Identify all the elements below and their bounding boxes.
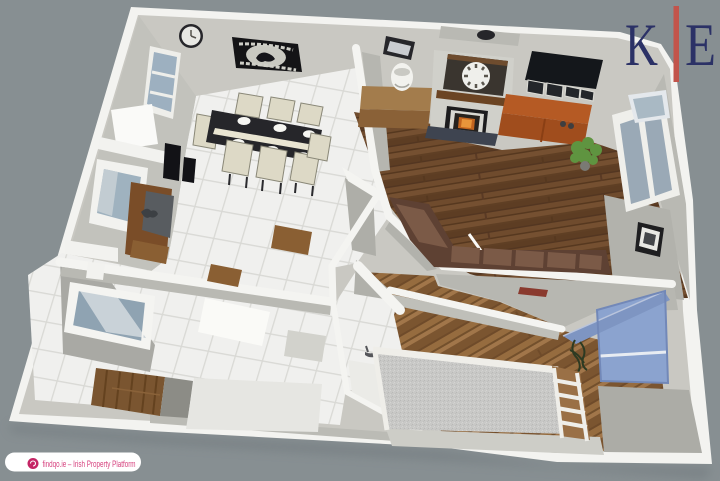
- svg-text:K: K: [625, 12, 658, 78]
- svg-text:findqo.ie – Irish Property Pla: findqo.ie – Irish Property Platform: [43, 459, 136, 469]
- svg-text:E: E: [685, 12, 716, 78]
